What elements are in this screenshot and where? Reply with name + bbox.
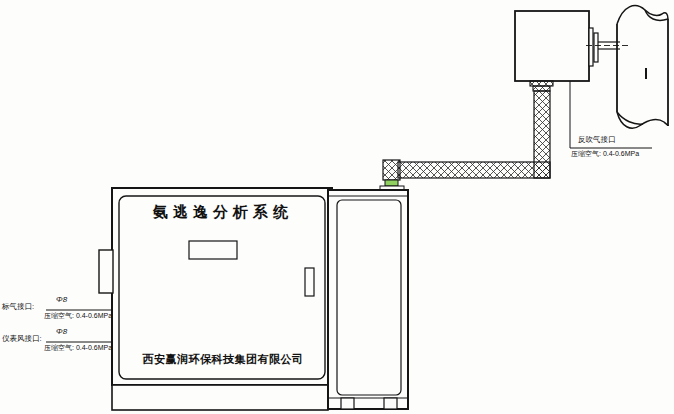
cabinet-port1-spec: 压缩空气: 0.4-0.6MPa [44, 312, 112, 320]
rack-foot [384, 398, 397, 409]
cabinet-title: 氨逃逸分析系统 [120, 204, 326, 221]
diagram-canvas: 氨逃逸分析系统 西安赢润环保科技集团有限公司 反吹气接口 压缩空气: 0.4-0… [0, 0, 674, 414]
analyzer-cabinet [99, 188, 332, 410]
probe-gland-nut [530, 81, 553, 91]
diagram-linework [0, 0, 674, 414]
cabinet-port2-label: 仪表风接口: [2, 335, 42, 343]
probe-mounting-flange [586, 28, 629, 66]
sampling-probe-box [515, 11, 589, 81]
side-equipment-rack [328, 190, 408, 409]
cabinet-company-name: 西安赢润环保科技集团有限公司 [120, 353, 326, 365]
probe-port-spec: 压缩空气: 0.4-0.6MPa [571, 150, 639, 158]
cabinet-port1-diameter: Φ8 [56, 296, 67, 305]
flue-stack-pipe [617, 6, 668, 128]
display-screen [189, 241, 237, 259]
door-handle [305, 268, 314, 296]
heated-sample-line [383, 91, 550, 180]
cabinet-port1-label: 标气接口: [2, 303, 34, 311]
cabinet-port2-diameter: Φ8 [56, 328, 67, 337]
cabinet-base [112, 385, 328, 410]
cabinet-side-port-box [99, 250, 113, 293]
probe-port-label: 反吹气接口 [578, 136, 616, 144]
cabinet-port2-spec: 压缩空气: 0.4-0.6MPa [44, 344, 112, 352]
rack-foot [341, 398, 354, 409]
